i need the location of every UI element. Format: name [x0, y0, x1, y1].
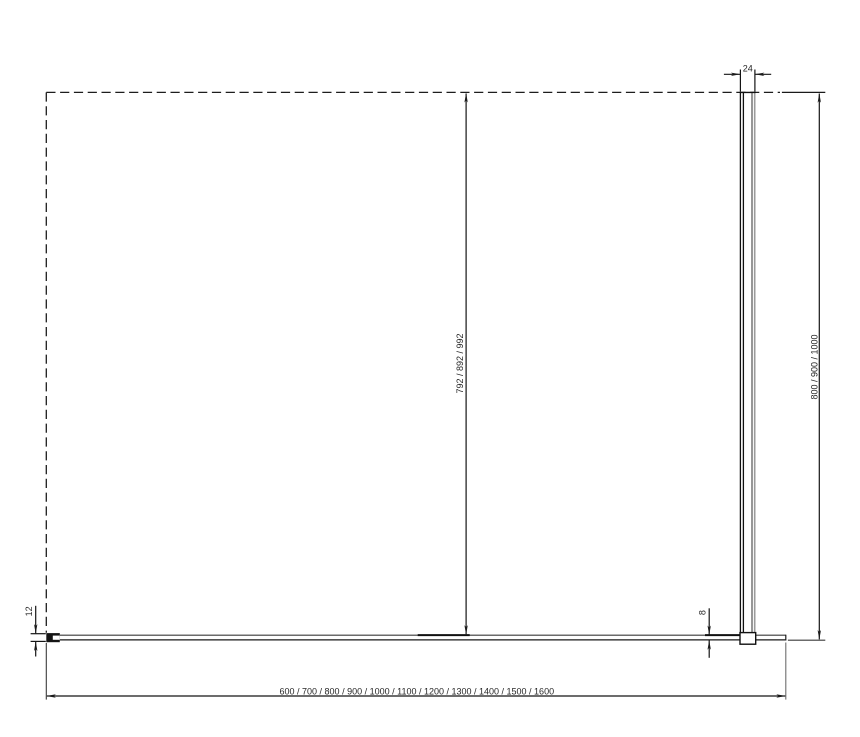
svg-text:800 / 900 / 1000: 800 / 900 / 1000 [809, 334, 819, 399]
svg-text:600 / 700 / 800 / 900 / 1000 /: 600 / 700 / 800 / 900 / 1000 / 1100 / 12… [280, 687, 555, 697]
svg-text:24: 24 [743, 64, 753, 74]
svg-text:12: 12 [24, 606, 34, 616]
svg-text:8: 8 [698, 610, 708, 615]
svg-text:792 / 892 / 992: 792 / 892 / 992 [455, 333, 465, 393]
